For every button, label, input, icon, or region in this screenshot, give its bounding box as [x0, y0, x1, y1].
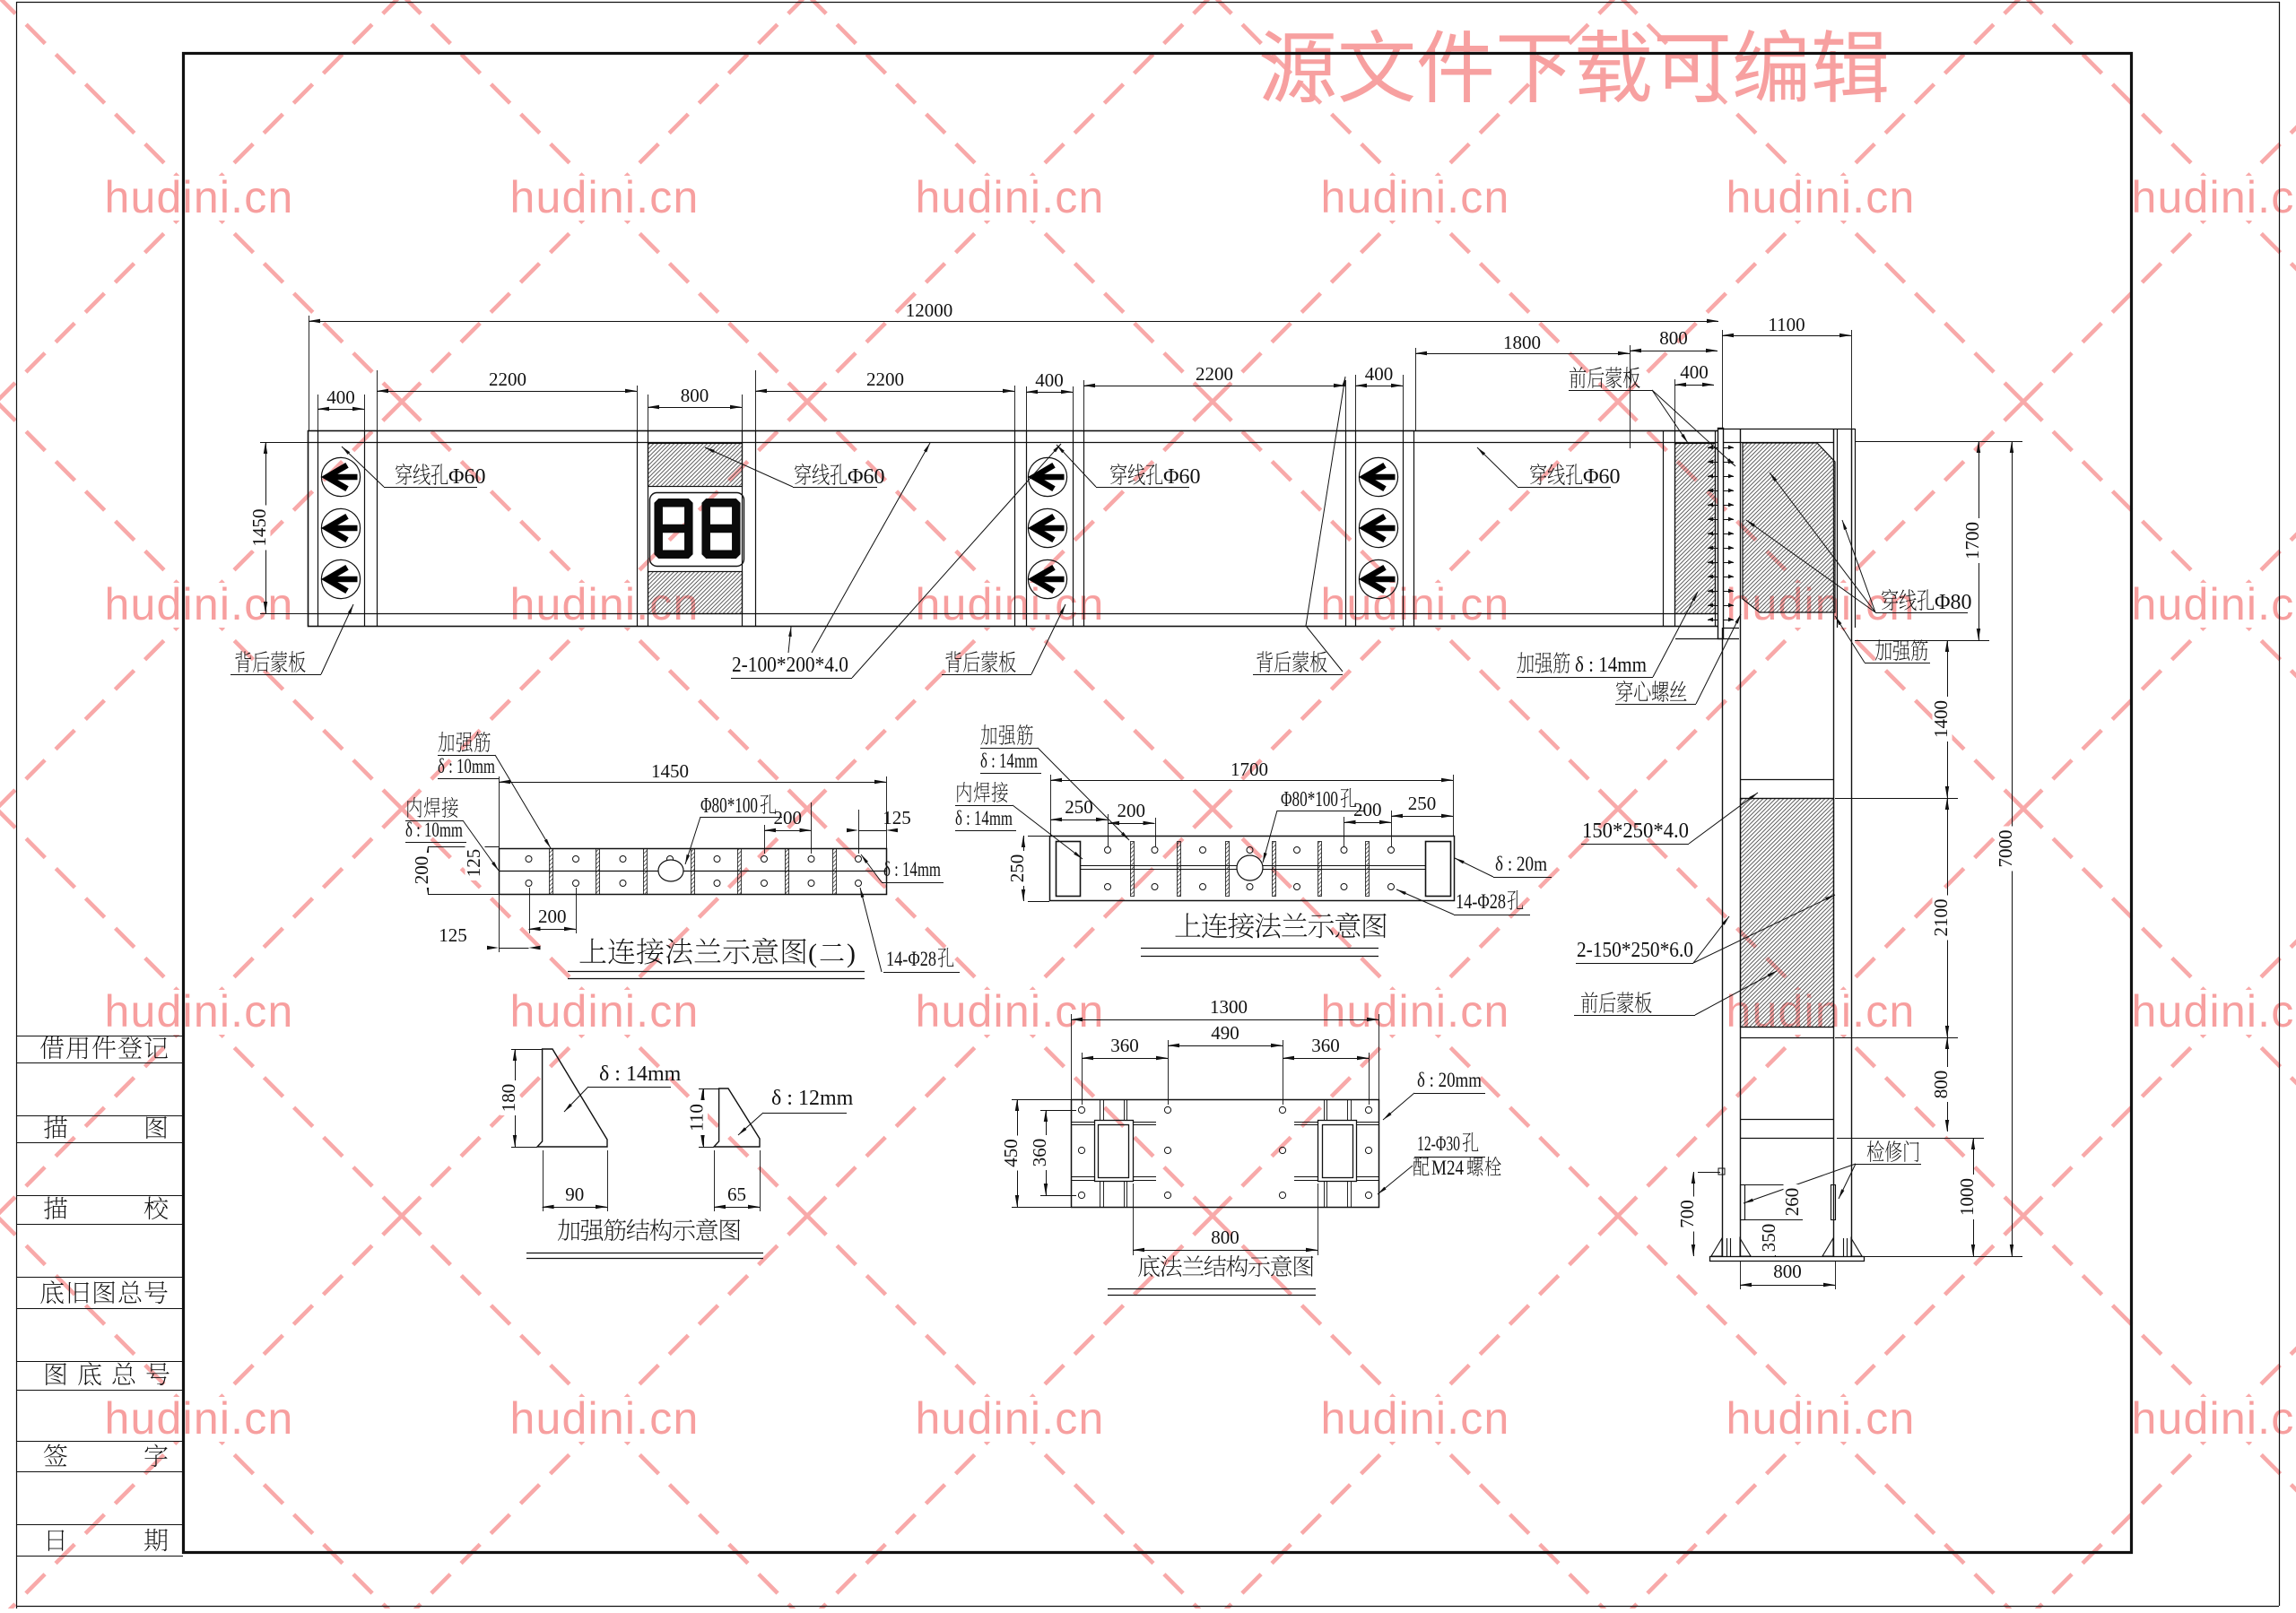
svg-text:Φ80*100: Φ80*100 — [700, 794, 758, 818]
svg-text:(: ( — [808, 939, 817, 968]
svg-text:1450: 1450 — [248, 509, 270, 547]
svg-text:1300: 1300 — [1210, 996, 1248, 1018]
svg-text:Φ80*100: Φ80*100 — [1281, 788, 1338, 811]
svg-text:450: 450 — [1000, 1139, 1022, 1167]
svg-text:δ : 12mm: δ : 12mm — [771, 1087, 854, 1110]
svg-text:800: 800 — [1930, 1071, 1952, 1099]
svg-text:δ : 10mm: δ : 10mm — [438, 755, 495, 777]
svg-text:14-Φ28: 14-Φ28 — [886, 948, 936, 970]
svg-text:800: 800 — [681, 385, 709, 406]
svg-text:200: 200 — [538, 906, 567, 927]
svg-text:12000: 12000 — [906, 299, 953, 321]
svg-text:1700: 1700 — [1231, 759, 1268, 780]
svg-text:14-Φ28: 14-Φ28 — [1456, 890, 1506, 913]
svg-text:200: 200 — [773, 807, 802, 828]
svg-text:90: 90 — [565, 1184, 584, 1205]
svg-text:Φ80: Φ80 — [1935, 591, 1972, 614]
svg-text:δ : 20mm: δ : 20mm — [1417, 1069, 1482, 1091]
svg-text:250: 250 — [1408, 793, 1437, 814]
svg-text:δ : 14mm: δ : 14mm — [883, 858, 941, 880]
svg-text:110: 110 — [686, 1104, 708, 1132]
svg-text:125: 125 — [439, 924, 467, 946]
svg-text:700: 700 — [1676, 1200, 1698, 1228]
svg-text:1700: 1700 — [1961, 522, 1983, 559]
svg-text:260: 260 — [1781, 1188, 1803, 1217]
svg-text:800: 800 — [1211, 1227, 1239, 1248]
svg-text:1800: 1800 — [1503, 332, 1541, 353]
svg-text:δ : 20m: δ : 20m — [1495, 853, 1547, 875]
svg-text:δ : 10mm: δ : 10mm — [405, 819, 463, 841]
svg-text:800: 800 — [1773, 1261, 1802, 1282]
svg-text:2-150*250*6.0: 2-150*250*6.0 — [1577, 939, 1693, 962]
svg-text:δ : 14mm: δ : 14mm — [955, 807, 1013, 829]
svg-text:2-100*200*4.0: 2-100*200*4.0 — [732, 654, 848, 677]
svg-text:400: 400 — [1365, 363, 1394, 385]
svg-text:360: 360 — [1110, 1035, 1139, 1056]
svg-text:125: 125 — [463, 849, 484, 878]
svg-text:Φ60: Φ60 — [848, 465, 885, 489]
svg-text:360: 360 — [1029, 1139, 1050, 1167]
svg-text:2200: 2200 — [866, 369, 904, 390]
svg-text:400: 400 — [326, 386, 355, 408]
svg-text:200: 200 — [411, 856, 432, 885]
svg-text:1000: 1000 — [1956, 1178, 1978, 1216]
svg-text:360: 360 — [1311, 1035, 1340, 1056]
svg-text:250: 250 — [1006, 854, 1028, 883]
svg-text:490: 490 — [1211, 1022, 1239, 1044]
svg-text:400: 400 — [1035, 369, 1064, 391]
svg-text:65: 65 — [727, 1184, 746, 1205]
svg-text:1450: 1450 — [651, 760, 689, 782]
svg-text:Φ60: Φ60 — [1583, 465, 1621, 489]
svg-text:400: 400 — [1680, 361, 1709, 383]
svg-text:350: 350 — [1758, 1224, 1779, 1253]
svg-text:δ : 14mm: δ : 14mm — [1575, 654, 1647, 677]
svg-text:Φ60: Φ60 — [448, 465, 486, 489]
svg-text:12-Φ30: 12-Φ30 — [1417, 1132, 1460, 1155]
svg-text:800: 800 — [1659, 327, 1688, 349]
svg-text:): ) — [847, 939, 856, 968]
svg-text:δ : 14mm: δ : 14mm — [980, 750, 1038, 772]
svg-text:δ : 14mm: δ : 14mm — [599, 1062, 682, 1086]
svg-text:180: 180 — [498, 1084, 519, 1113]
svg-text:125: 125 — [883, 807, 911, 828]
svg-text:2200: 2200 — [1196, 363, 1233, 385]
svg-text:200: 200 — [1353, 799, 1382, 820]
svg-text:1400: 1400 — [1930, 700, 1952, 738]
svg-text:M24: M24 — [1431, 1157, 1464, 1179]
svg-text:1100: 1100 — [1768, 314, 1805, 335]
svg-text:2200: 2200 — [489, 369, 526, 390]
svg-text:2100: 2100 — [1930, 899, 1952, 937]
svg-text:Φ60: Φ60 — [1163, 465, 1201, 489]
svg-text:200: 200 — [1117, 800, 1145, 821]
svg-text:7000: 7000 — [1995, 830, 2016, 868]
svg-text:150*250*4.0: 150*250*4.0 — [1582, 820, 1689, 843]
